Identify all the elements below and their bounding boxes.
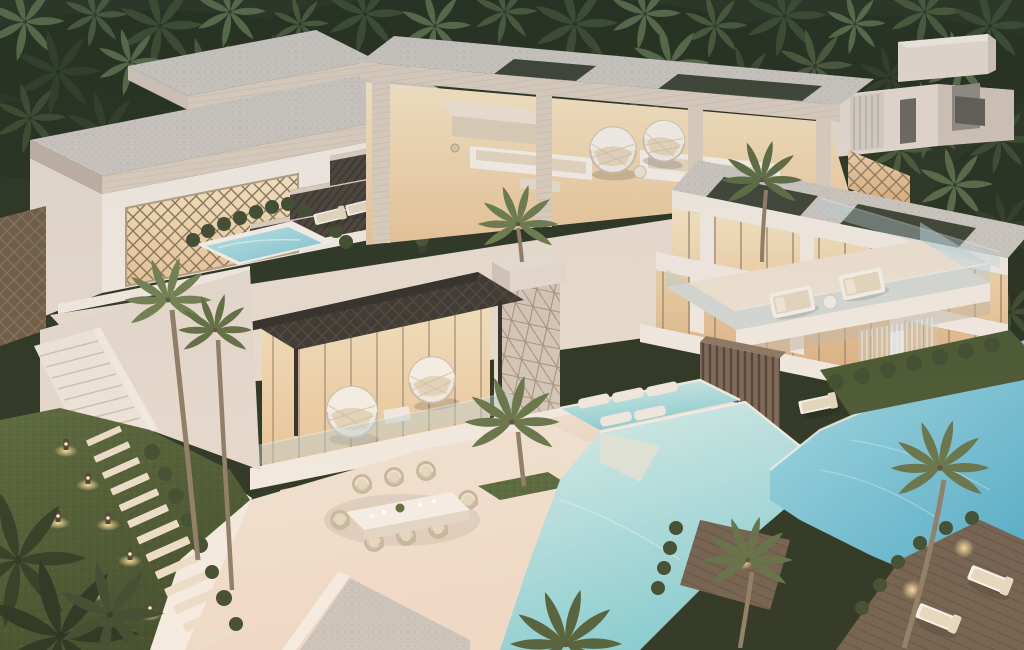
dusk-overlay: [0, 0, 1024, 650]
render-canvas: [0, 0, 1024, 650]
villa-render-scene: [0, 0, 1024, 650]
